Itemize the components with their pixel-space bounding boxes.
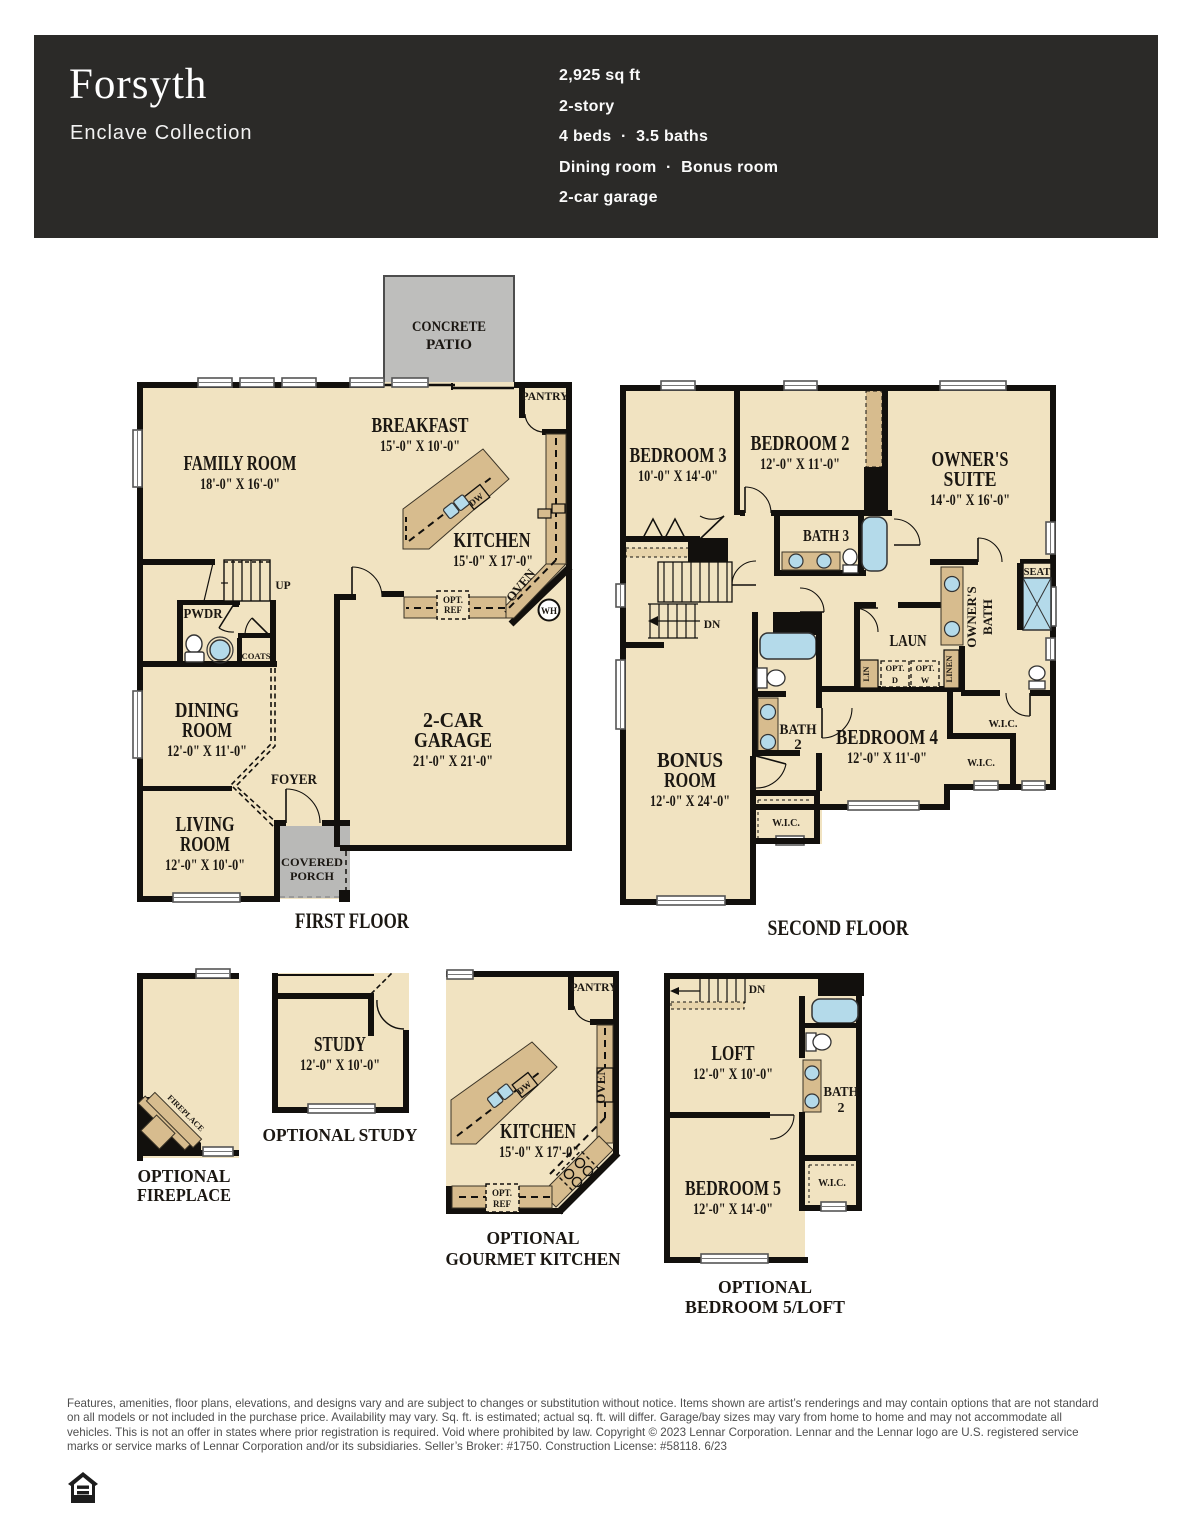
svg-text:BEDROOM 5: BEDROOM 5 bbox=[685, 1176, 781, 1200]
svg-text:DN: DN bbox=[704, 619, 721, 631]
svg-text:BEDROOM 3: BEDROOM 3 bbox=[630, 443, 727, 467]
svg-text:PATIO: PATIO bbox=[426, 337, 472, 353]
svg-text:W.I.C.: W.I.C. bbox=[967, 758, 995, 769]
svg-text:WH: WH bbox=[541, 606, 557, 616]
svg-text:12'-0" X 11'-0": 12'-0" X 11'-0" bbox=[760, 456, 840, 473]
svg-text:SECOND FLOOR: SECOND FLOOR bbox=[768, 915, 910, 940]
svg-text:REF: REF bbox=[493, 1199, 512, 1209]
svg-text:KITCHEN: KITCHEN bbox=[500, 1119, 576, 1143]
svg-text:12'-0" X 14'-0": 12'-0" X 14'-0" bbox=[693, 1201, 773, 1218]
svg-text:BATH: BATH bbox=[824, 1085, 859, 1100]
svg-text:CONCRETE: CONCRETE bbox=[412, 319, 486, 335]
svg-text:BATH 3: BATH 3 bbox=[803, 526, 849, 545]
svg-text:OPT.: OPT. bbox=[886, 663, 905, 673]
svg-text:BEDROOM 2: BEDROOM 2 bbox=[751, 431, 850, 455]
svg-text:21'-0" X 21'-0": 21'-0" X 21'-0" bbox=[413, 753, 493, 770]
svg-text:LAUN: LAUN bbox=[890, 631, 928, 650]
svg-text:OPT.: OPT. bbox=[492, 1188, 512, 1198]
svg-text:12'-0" X 24'-0": 12'-0" X 24'-0" bbox=[650, 793, 730, 810]
svg-text:LINEN: LINEN bbox=[944, 655, 954, 683]
svg-text:OPTIONAL STUDY: OPTIONAL STUDY bbox=[263, 1125, 418, 1145]
svg-text:OPTIONAL: OPTIONAL bbox=[138, 1166, 231, 1186]
svg-text:PANTRY: PANTRY bbox=[522, 389, 569, 403]
svg-text:15'-0" X 17'-0": 15'-0" X 17'-0" bbox=[453, 553, 533, 570]
svg-text:BATH: BATH bbox=[980, 599, 995, 635]
svg-text:PANTRY: PANTRY bbox=[571, 980, 618, 994]
svg-text:DN: DN bbox=[749, 984, 766, 996]
svg-text:OPT.: OPT. bbox=[443, 595, 463, 605]
svg-text:12'-0" X 11'-0": 12'-0" X 11'-0" bbox=[167, 743, 247, 760]
svg-text:BEDROOM 4: BEDROOM 4 bbox=[836, 725, 938, 749]
svg-text:LIN: LIN bbox=[861, 666, 871, 682]
svg-text:W: W bbox=[921, 675, 930, 685]
svg-text:KITCHEN: KITCHEN bbox=[454, 528, 531, 552]
svg-text:GARAGE: GARAGE bbox=[414, 728, 492, 752]
svg-text:W.I.C.: W.I.C. bbox=[818, 1178, 846, 1189]
svg-text:12'-0" X 10'-0": 12'-0" X 10'-0" bbox=[693, 1066, 773, 1083]
svg-text:FIREPLACE: FIREPLACE bbox=[137, 1185, 231, 1205]
svg-text:12'-0" X 11'-0": 12'-0" X 11'-0" bbox=[847, 750, 927, 767]
svg-text:PWDR: PWDR bbox=[184, 607, 224, 622]
svg-text:W.I.C.: W.I.C. bbox=[772, 818, 800, 829]
svg-text:ROOM: ROOM bbox=[664, 768, 716, 792]
svg-text:15'-0" X 17'-0": 15'-0" X 17'-0" bbox=[499, 1144, 579, 1161]
svg-text:COATS: COATS bbox=[242, 651, 271, 661]
svg-text:2: 2 bbox=[794, 737, 802, 753]
svg-text:BEDROOM 5/LOFT: BEDROOM 5/LOFT bbox=[685, 1297, 845, 1317]
svg-text:W.I.C.: W.I.C. bbox=[988, 719, 1017, 730]
svg-text:COVERED: COVERED bbox=[281, 855, 343, 869]
svg-text:OWNER'S: OWNER'S bbox=[964, 586, 979, 647]
svg-text:12'-0" X 10'-0": 12'-0" X 10'-0" bbox=[300, 1057, 380, 1074]
svg-text:PORCH: PORCH bbox=[290, 869, 335, 883]
svg-text:OPT.: OPT. bbox=[916, 663, 935, 673]
svg-text:SEAT: SEAT bbox=[1024, 567, 1051, 578]
svg-text:FOYER: FOYER bbox=[271, 772, 317, 788]
svg-text:OPTIONAL: OPTIONAL bbox=[487, 1228, 580, 1248]
svg-text:UP: UP bbox=[275, 580, 290, 592]
svg-text:12'-0" X 10'-0": 12'-0" X 10'-0" bbox=[165, 857, 245, 874]
svg-text:ROOM: ROOM bbox=[180, 832, 230, 856]
svg-text:LOFT: LOFT bbox=[712, 1041, 755, 1065]
svg-text:BREAKFAST: BREAKFAST bbox=[372, 413, 469, 437]
svg-text:2: 2 bbox=[838, 1101, 845, 1116]
svg-text:STUDY: STUDY bbox=[314, 1032, 366, 1056]
svg-text:BATH: BATH bbox=[780, 722, 817, 738]
svg-text:FIRST FLOOR: FIRST FLOOR bbox=[295, 908, 410, 933]
svg-text:GOURMET KITCHEN: GOURMET KITCHEN bbox=[446, 1249, 621, 1269]
svg-text:SUITE: SUITE bbox=[944, 467, 997, 491]
svg-text:ROOM: ROOM bbox=[182, 718, 232, 742]
svg-text:REF: REF bbox=[444, 605, 463, 615]
svg-text:OPTIONAL: OPTIONAL bbox=[718, 1277, 812, 1297]
svg-text:10'-0" X 14'-0": 10'-0" X 14'-0" bbox=[638, 468, 718, 485]
svg-text:FAMILY ROOM: FAMILY ROOM bbox=[184, 451, 297, 475]
svg-text:14'-0" X 16'-0": 14'-0" X 16'-0" bbox=[930, 492, 1010, 509]
svg-text:OVEN: OVEN bbox=[593, 1066, 608, 1104]
svg-text:15'-0" X 10'-0": 15'-0" X 10'-0" bbox=[380, 438, 460, 455]
svg-text:D: D bbox=[892, 675, 898, 685]
svg-text:18'-0" X 16'-0": 18'-0" X 16'-0" bbox=[200, 476, 280, 493]
